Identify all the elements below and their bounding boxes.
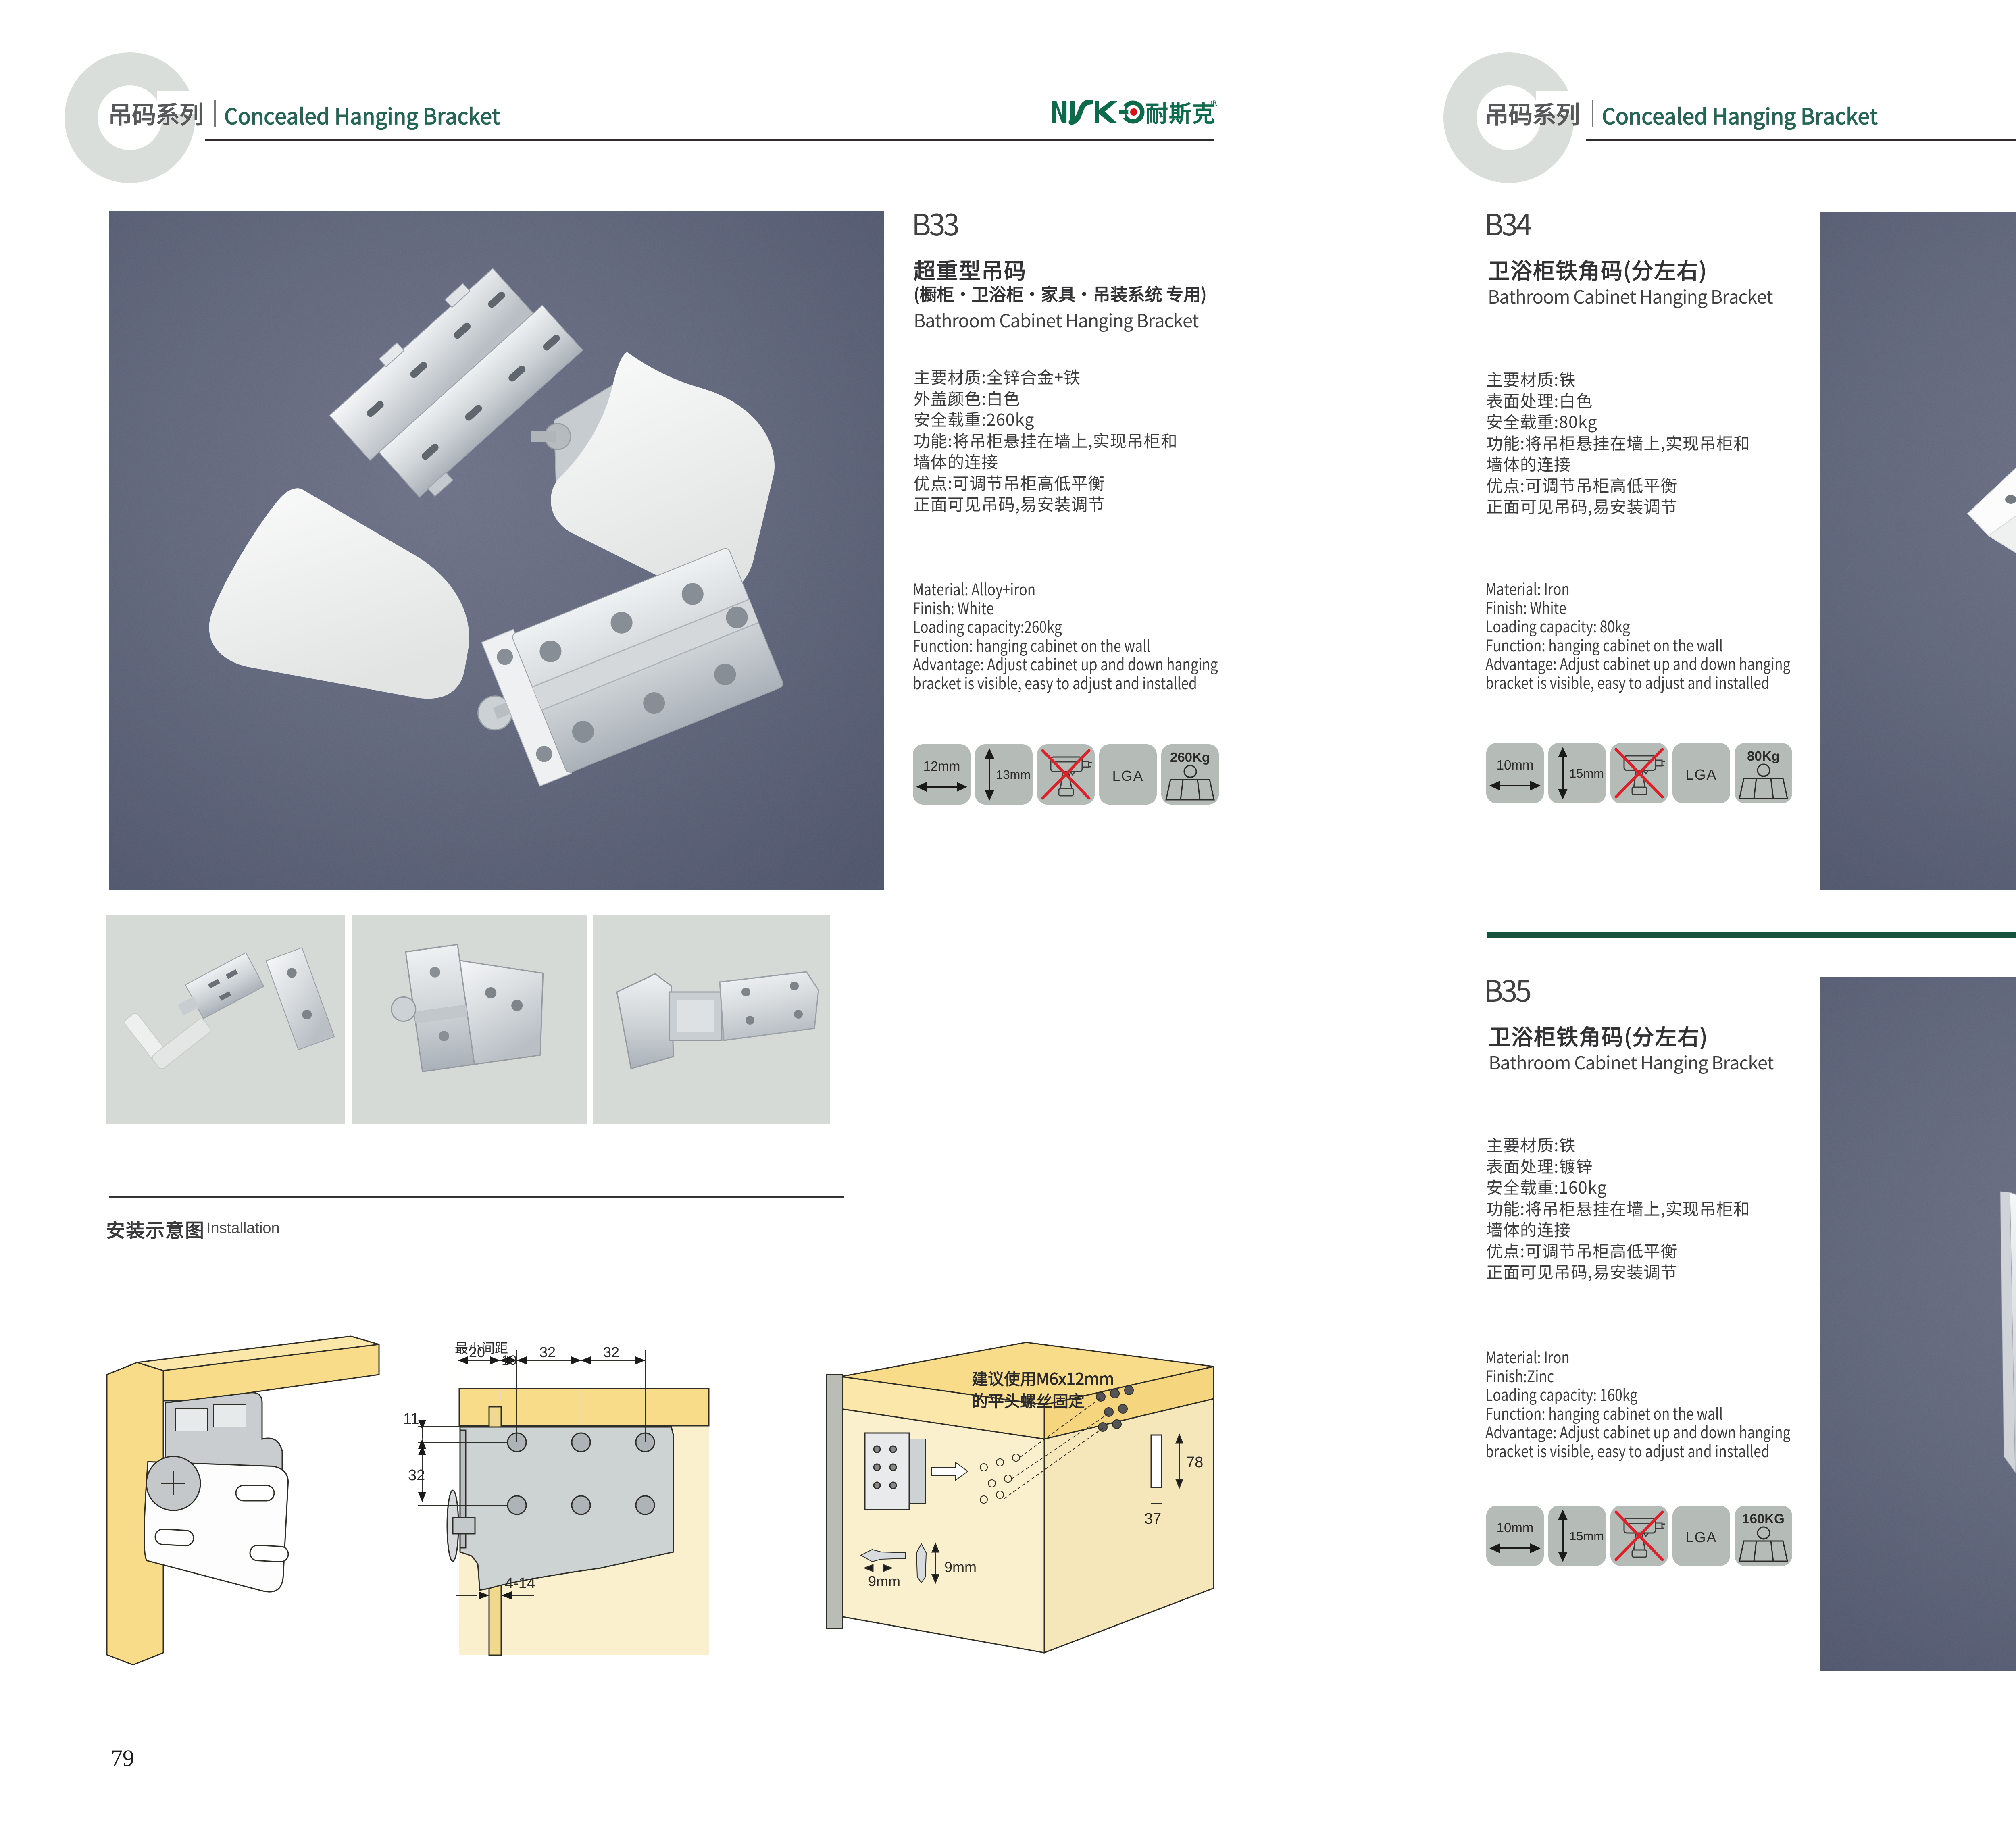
svg-text:4-14: 4-14 [505, 1575, 535, 1592]
svg-text:9mm: 9mm [944, 1559, 977, 1575]
svg-text:建议使用M6x12mm: 建议使用M6x12mm [972, 1366, 1114, 1389]
svg-text:32: 32 [603, 1344, 619, 1360]
svg-text:耐斯克: 耐斯克 [1145, 100, 1216, 127]
svg-text:37: 37 [1144, 1510, 1161, 1527]
svg-text:32: 32 [408, 1467, 425, 1484]
svg-text:9mm: 9mm [868, 1573, 900, 1589]
svg-text:®: ® [1211, 100, 1217, 109]
svg-text:78: 78 [1186, 1454, 1203, 1471]
svg-text:10: 10 [502, 1353, 517, 1368]
svg-text:32: 32 [539, 1344, 556, 1360]
svg-text:11: 11 [403, 1410, 419, 1427]
svg-text:的平头螺丝固定: 的平头螺丝固定 [972, 1388, 1085, 1412]
svg-text:20: 20 [469, 1344, 485, 1360]
